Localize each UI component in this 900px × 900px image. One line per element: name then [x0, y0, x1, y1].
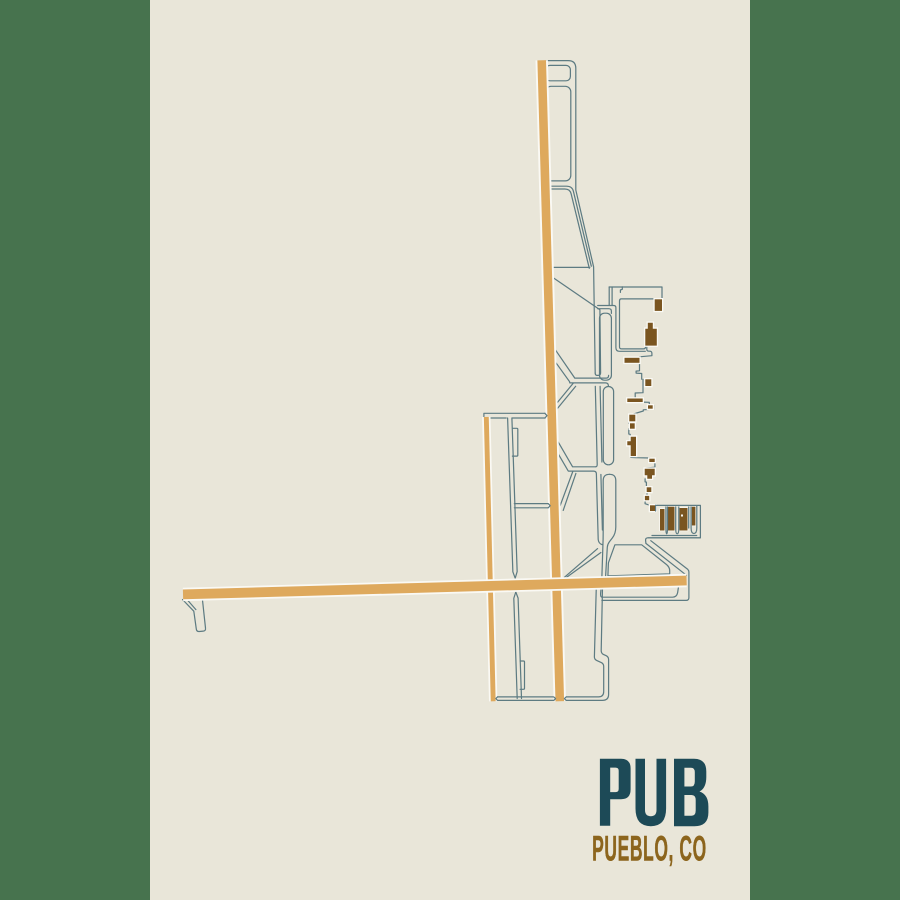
svg-text:PUEBLO, CO: PUEBLO, CO: [592, 829, 707, 868]
